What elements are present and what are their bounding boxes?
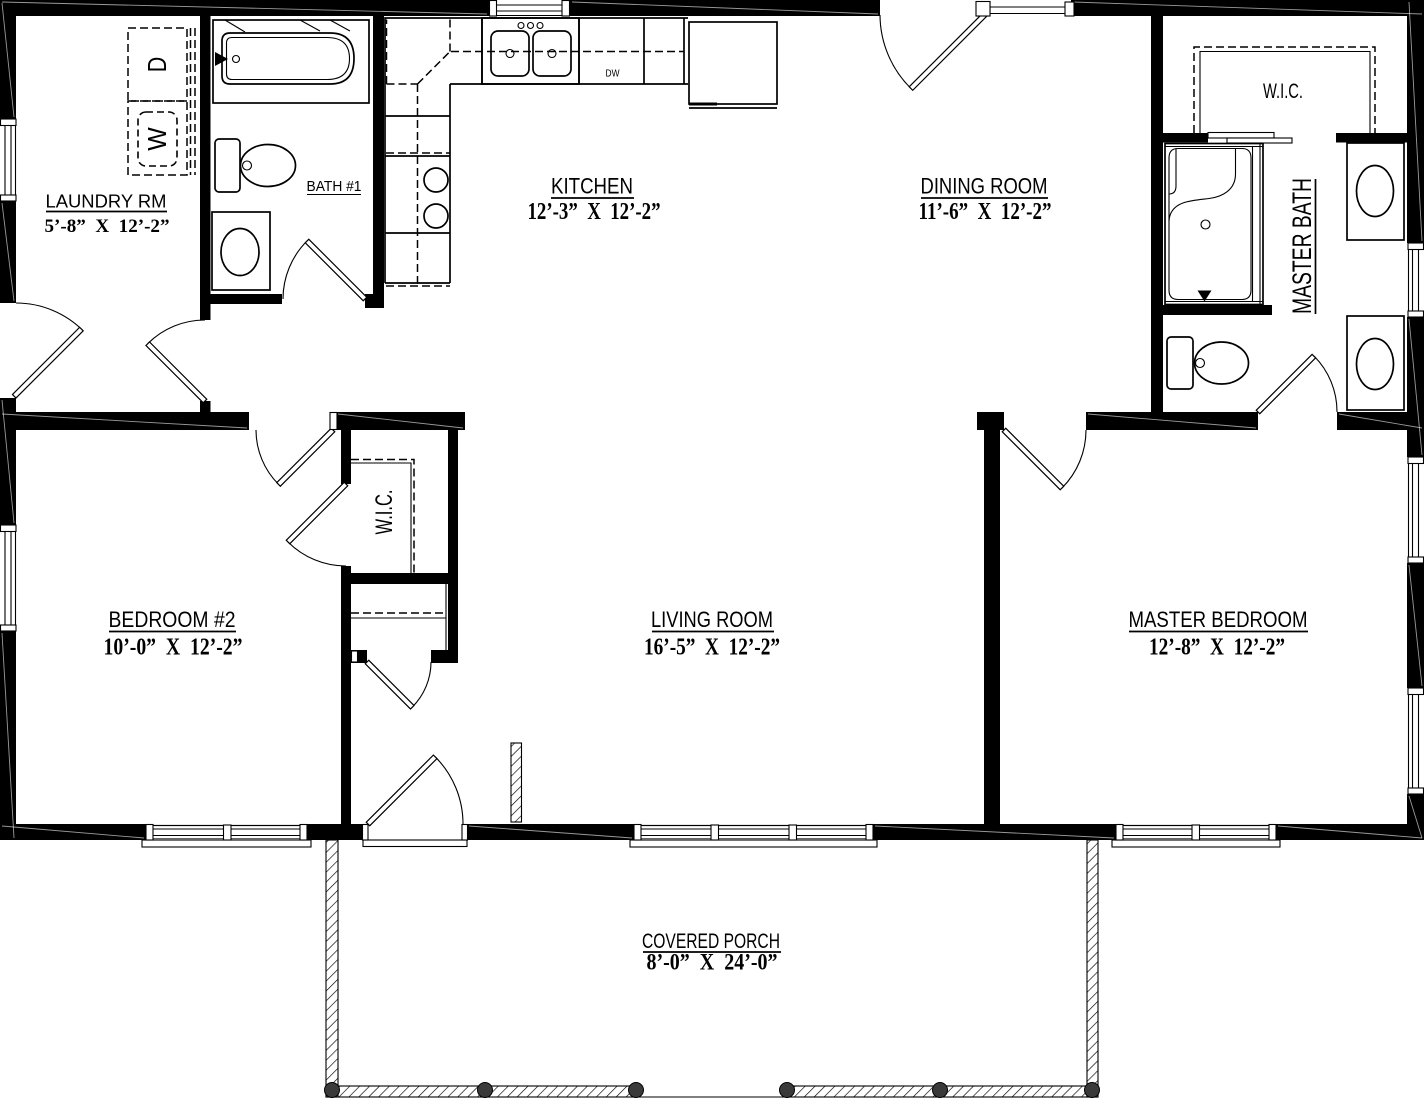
svg-text:16’-5” X 12’-2”: 16’-5” X 12’-2” (644, 635, 780, 661)
svg-text:12’-8” X 12’-2”: 12’-8” X 12’-2” (1149, 635, 1285, 661)
svg-text:5’-8” X 12’-2”: 5’-8” X 12’-2” (45, 216, 170, 237)
svg-text:W: W (142, 127, 172, 151)
svg-text:W.I.C.: W.I.C. (1263, 80, 1303, 103)
svg-text:MASTER BEDROOM: MASTER BEDROOM (1129, 607, 1308, 632)
svg-text:BEDROOM #2: BEDROOM #2 (109, 607, 236, 632)
svg-text:12’-3” X 12’-2”: 12’-3” X 12’-2” (528, 199, 661, 225)
svg-text:LIVING ROOM: LIVING ROOM (651, 607, 773, 632)
svg-text:W.I.C.: W.I.C. (371, 490, 398, 535)
svg-text:BATH #1: BATH #1 (307, 179, 362, 195)
svg-text:LAUNDRY RM: LAUNDRY RM (46, 192, 167, 212)
svg-text:DINING ROOM: DINING ROOM (921, 174, 1048, 199)
svg-text:DW: DW (606, 69, 620, 80)
svg-text:D: D (142, 57, 172, 73)
svg-text:KITCHEN: KITCHEN (551, 174, 633, 199)
svg-text:10’-0” X 12’-2”: 10’-0” X 12’-2” (104, 635, 243, 661)
svg-text:8’-0” X 24’-0”: 8’-0” X 24’-0” (647, 950, 778, 975)
svg-text:11’-6” X 12’-2”: 11’-6” X 12’-2” (919, 199, 1052, 225)
svg-text:MASTER BATH: MASTER BATH (1287, 178, 1317, 314)
